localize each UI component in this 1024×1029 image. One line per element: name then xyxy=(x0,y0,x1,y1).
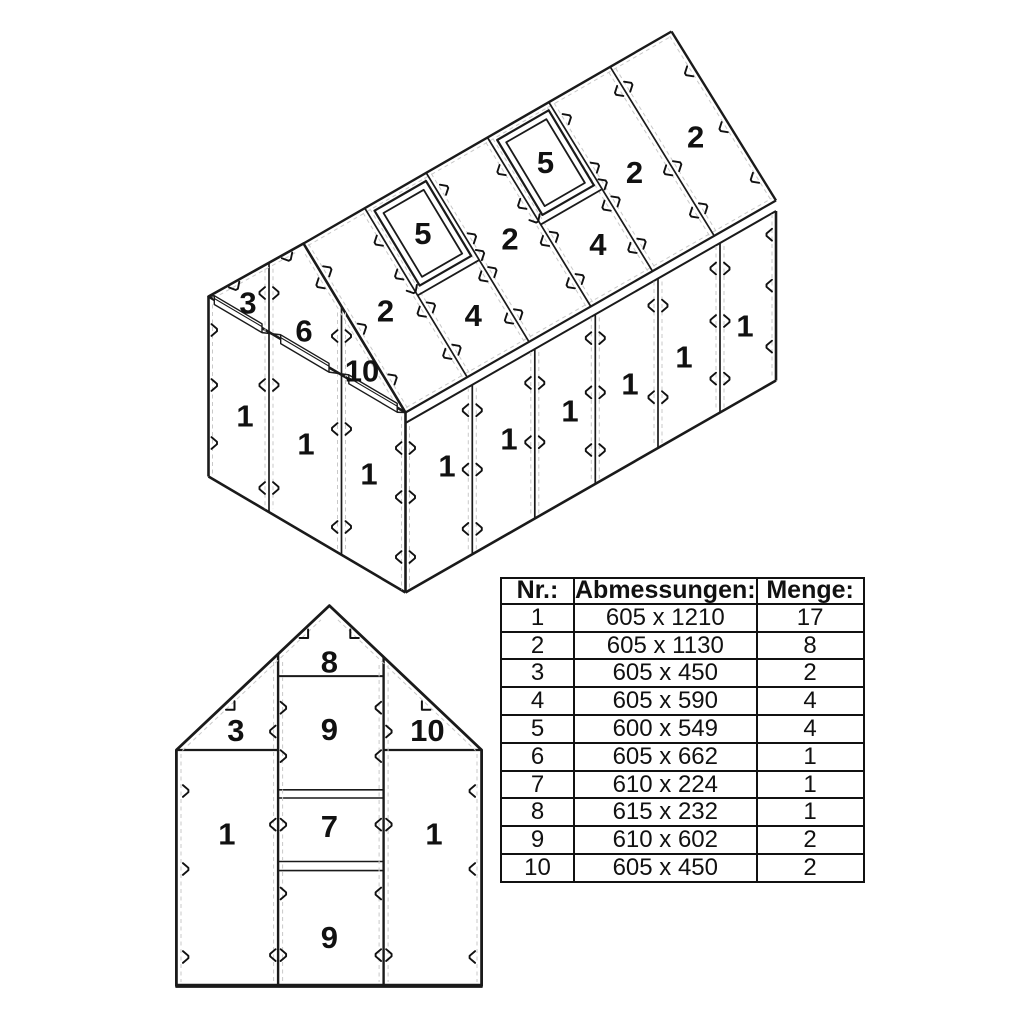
svg-text:10: 10 xyxy=(410,713,444,748)
svg-text:5: 5 xyxy=(537,145,554,180)
svg-text:1: 1 xyxy=(425,817,442,852)
svg-text:3: 3 xyxy=(239,286,256,321)
svg-text:1: 1 xyxy=(360,457,377,492)
svg-text:2: 2 xyxy=(501,222,518,257)
svg-text:1: 1 xyxy=(621,367,638,402)
svg-text:1: 1 xyxy=(218,817,235,852)
svg-text:10: 10 xyxy=(345,354,379,389)
svg-text:5: 5 xyxy=(414,216,431,251)
svg-text:8: 8 xyxy=(321,644,338,679)
svg-text:1: 1 xyxy=(561,394,578,429)
svg-text:1: 1 xyxy=(675,340,692,375)
svg-text:9: 9 xyxy=(321,920,338,955)
svg-text:1: 1 xyxy=(500,422,517,457)
svg-text:2: 2 xyxy=(687,120,704,155)
svg-text:1: 1 xyxy=(236,399,253,434)
svg-text:1: 1 xyxy=(736,309,753,344)
svg-text:7: 7 xyxy=(321,809,338,844)
svg-text:2: 2 xyxy=(626,155,643,190)
svg-text:9: 9 xyxy=(321,712,338,747)
svg-text:4: 4 xyxy=(589,227,607,262)
svg-text:4: 4 xyxy=(465,298,483,333)
svg-text:3: 3 xyxy=(227,713,244,748)
svg-text:6: 6 xyxy=(295,314,312,349)
svg-text:2: 2 xyxy=(377,294,394,329)
svg-text:1: 1 xyxy=(297,427,314,462)
svg-text:1: 1 xyxy=(438,449,455,484)
